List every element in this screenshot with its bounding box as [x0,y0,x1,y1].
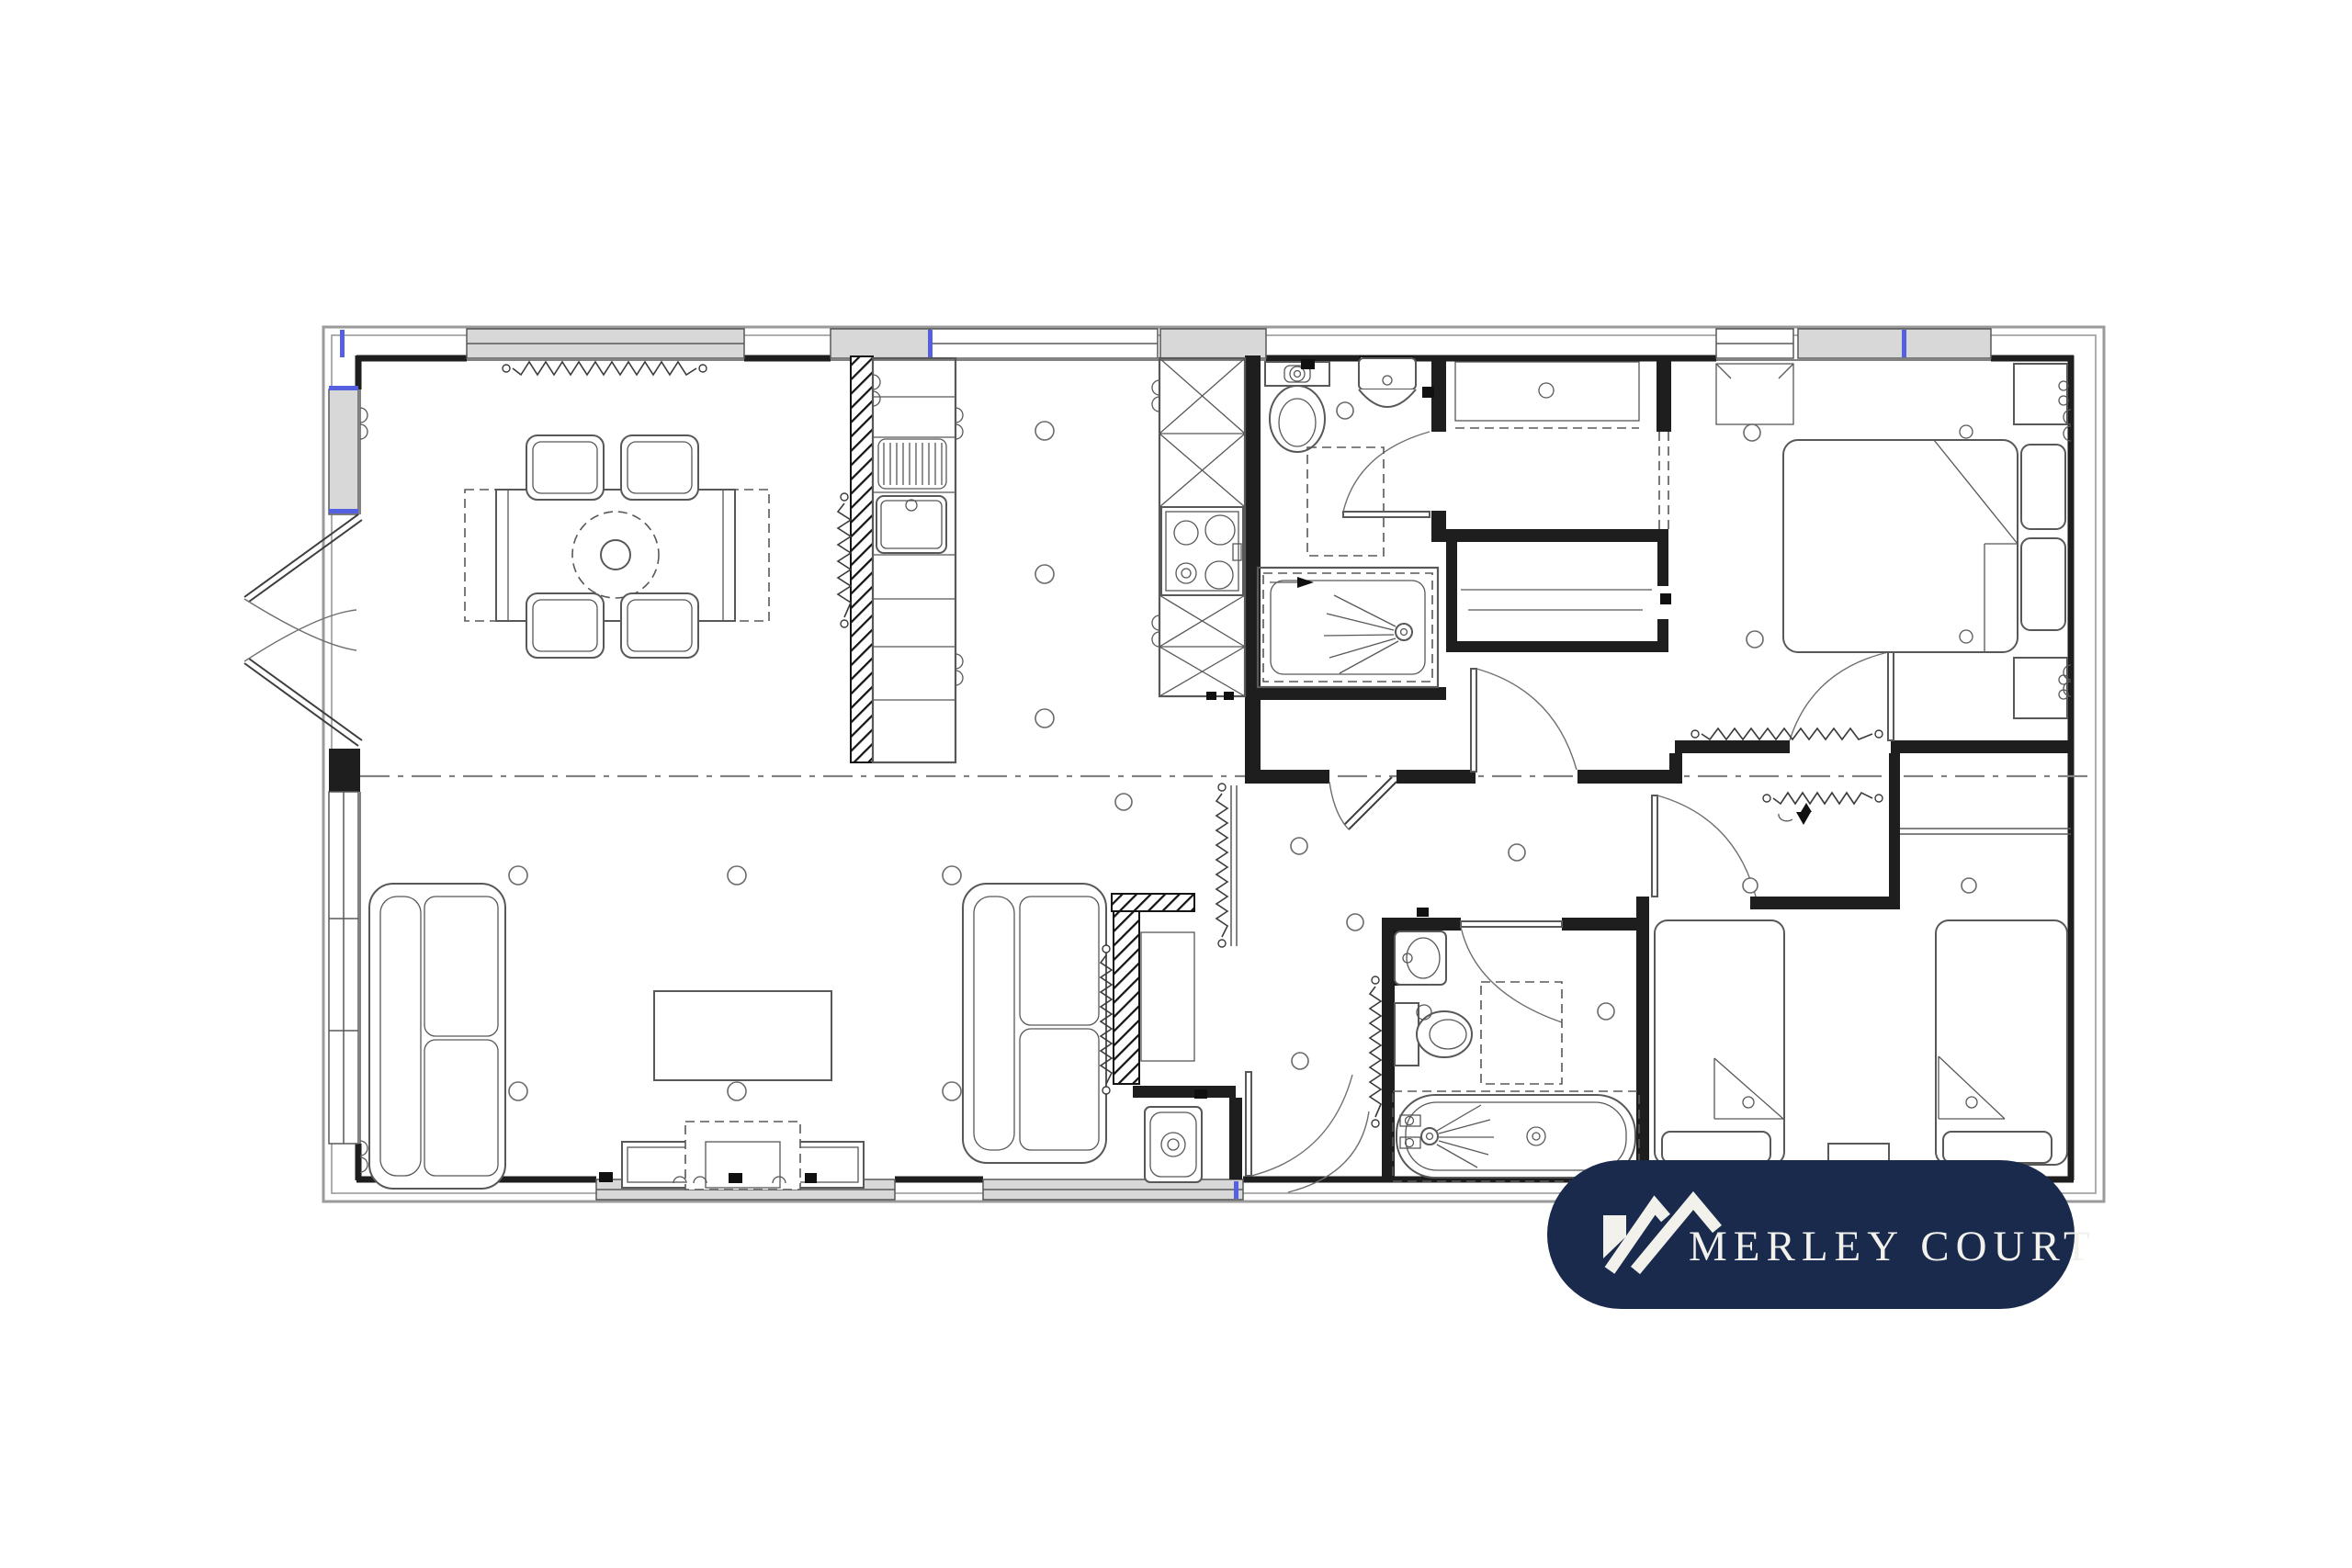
double-bed [1783,425,2018,652]
socket [1417,908,1429,917]
radiator-entrance [1216,794,1227,937]
toilet [1265,362,1329,452]
wall-pier [329,749,360,792]
pillow [2021,538,2065,630]
hob [1161,507,1243,595]
glazing-tick [1234,1181,1238,1199]
kitchen [873,358,1245,762]
coffee-table [654,991,831,1080]
socket [729,1173,742,1183]
thermostat-symbol [1779,803,1812,825]
glazing-tick [329,509,358,513]
window-master-2 [1798,329,1991,358]
radiator-kitchen [838,503,851,617]
cabinet-hinge-marks [955,408,963,685]
cased-opening [1659,432,1668,529]
glazing-tick [928,330,933,357]
twin-bedroom-door [1652,795,1756,897]
hatched-wall [1114,911,1139,1084]
socket [1206,692,1216,700]
socket [1301,359,1315,369]
floor-plan-drawing: MERLEY COURT [0,0,2352,1568]
socket [599,1172,613,1182]
master-bedroom-door [1790,652,1894,740]
bedside-cabinet [2014,364,2068,424]
cabinet-hinge-marks [1152,380,1159,647]
dining-chair [526,435,604,500]
socket [1194,1089,1207,1099]
single-bed [1936,920,2067,1165]
window-cabinet [1716,364,1793,424]
glazing-tick [340,330,345,357]
partition-screen [1231,785,1237,946]
kitchen-sink [876,496,946,553]
dining-chair [621,593,698,658]
toilet [1395,1003,1472,1066]
wardrobe-shelf [1455,362,1639,421]
hatched-wall [1112,894,1194,911]
wardrobe [1455,362,1671,604]
kitchen-counter-left [873,358,955,762]
sofa [963,884,1106,1163]
glazing-tick [329,386,358,390]
shower-room-door [1343,432,1430,517]
hatched-wall-kitchen [851,356,873,762]
dining-chair [526,593,604,658]
window-kitchen-1 [831,329,930,358]
pillow [1662,1132,1770,1163]
logo-badge: MERLEY COURT [1547,1160,2097,1309]
window-dining-side [329,389,358,514]
basin [1395,931,1446,985]
cupboard-door [1246,1072,1352,1176]
logo-label: MERLEY COURT [1689,1223,2097,1270]
window-kitchen-3 [1160,329,1266,358]
living-room [360,408,1194,1190]
radiator-dining [513,362,696,375]
tv-unit [622,1122,864,1190]
floor-marking [1481,982,1562,1084]
entrance-door [1329,777,1396,829]
draining-board [878,439,946,489]
dining-area [465,435,769,658]
bathroom-door [1461,921,1562,1022]
socket [1224,692,1234,700]
socket [1422,387,1434,398]
washing-machine [1145,1107,1202,1182]
basin [1359,356,1416,407]
hall-door [1471,669,1577,772]
twin-bedroom [1655,920,2067,1187]
tv [685,1122,800,1190]
french-doors [244,514,362,746]
pillow [1943,1132,2052,1163]
utility-cupboard [1145,1089,1207,1182]
desk-unit [1141,932,1194,1061]
cabinet-hinge-marks [873,375,880,406]
floor-plan-page: MERLEY COURT [0,0,2352,1568]
socket [1660,593,1671,604]
bedside-cabinet [2014,658,2068,718]
socket [805,1173,817,1183]
shower-enclosure [1258,568,1438,687]
pillow [2021,445,2065,529]
flow-arrow [1297,577,1314,588]
radiator-master [1702,728,1872,739]
family-bathroom [1393,908,1639,1181]
single-bed [1655,920,1784,1165]
wall-marks [360,408,367,1172]
wardrobe-track [1900,829,2071,834]
sofa [369,884,505,1189]
dining-chair [621,435,698,500]
glazing-tick [1902,330,1906,357]
floor-marking [1307,447,1384,556]
radiator-hall [1773,793,1872,804]
radiator-bathroom [1370,987,1381,1117]
